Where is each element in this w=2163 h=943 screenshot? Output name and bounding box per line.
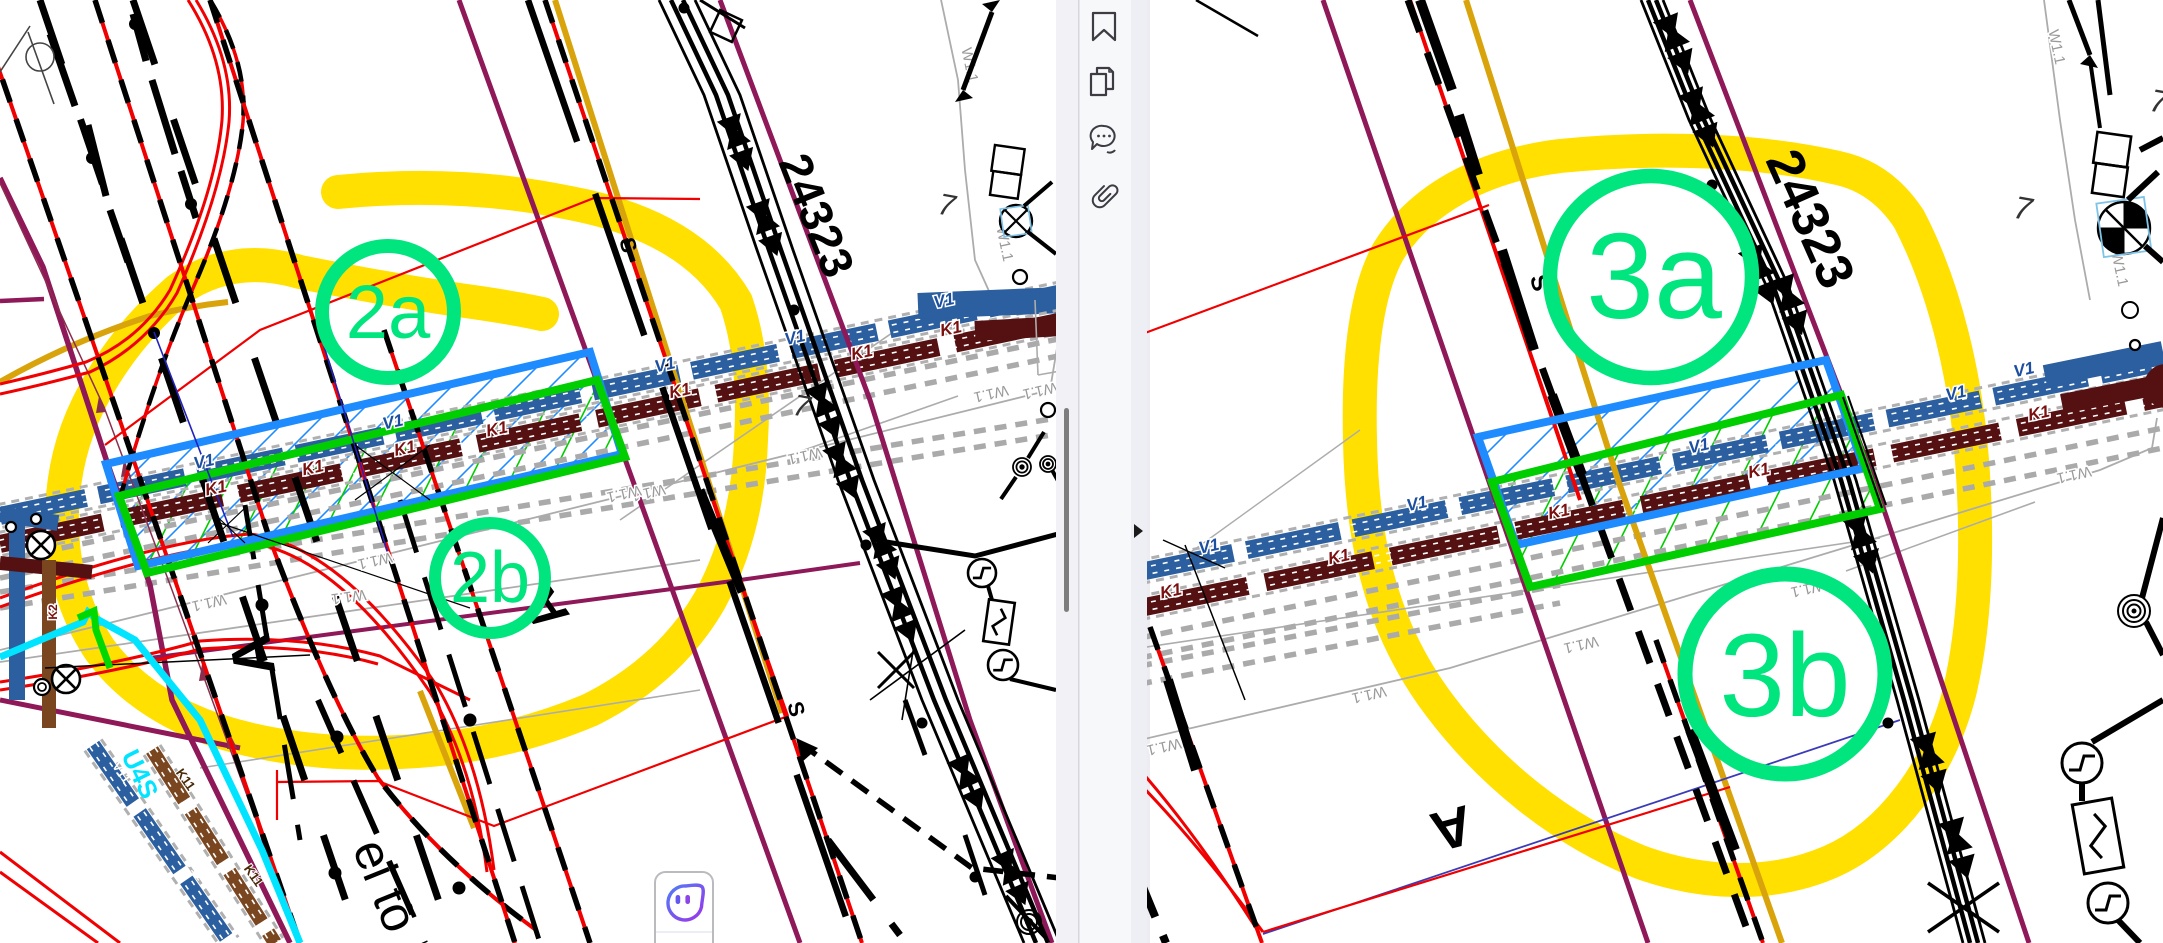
svg-text:2b: 2b [450,538,530,618]
svg-text:K2: K2 [46,604,60,620]
svg-text:3a: 3a [1586,208,1722,344]
svg-text:2a: 2a [346,270,431,355]
svg-text:3b: 3b [1719,610,1850,742]
